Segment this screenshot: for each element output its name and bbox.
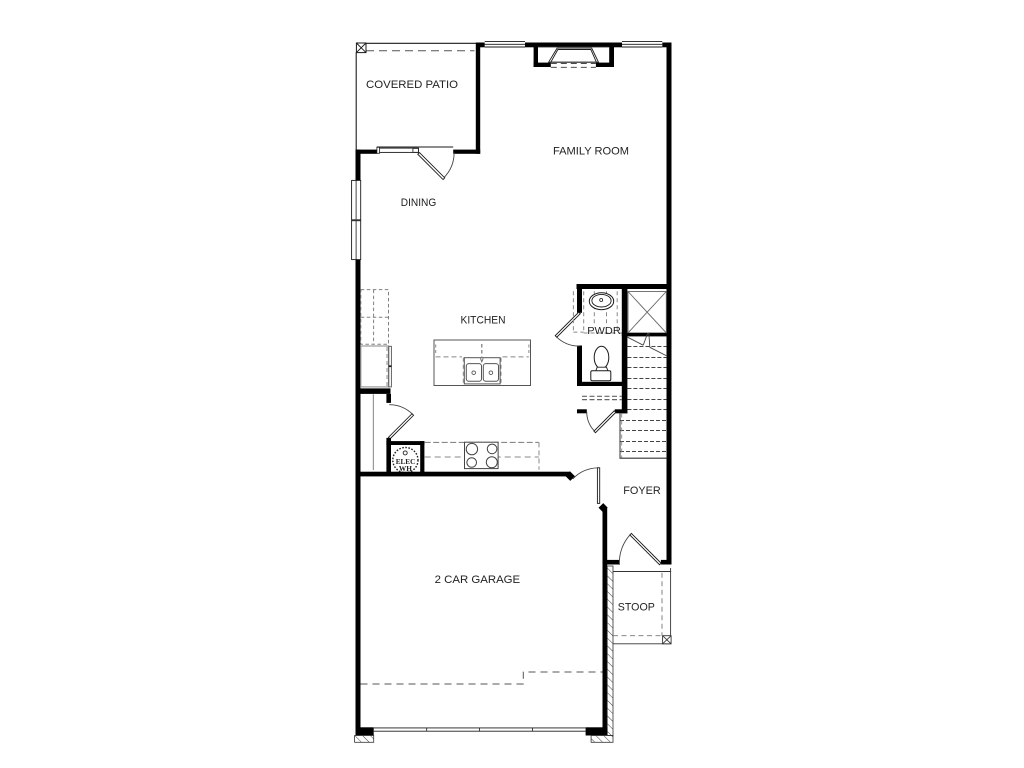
svg-text:KITCHEN: KITCHEN <box>461 314 506 326</box>
svg-text:STOOP: STOOP <box>618 602 655 614</box>
svg-text:COVERED PATIO: COVERED PATIO <box>366 79 458 91</box>
svg-text:FOYER: FOYER <box>623 485 661 497</box>
svg-text:PWDR: PWDR <box>587 325 621 337</box>
svg-text:2 CAR GARAGE: 2 CAR GARAGE <box>435 574 521 586</box>
svg-text:WH: WH <box>399 464 412 473</box>
svg-text:FAMILY ROOM: FAMILY ROOM <box>553 145 629 157</box>
svg-text:DINING: DINING <box>401 197 437 209</box>
